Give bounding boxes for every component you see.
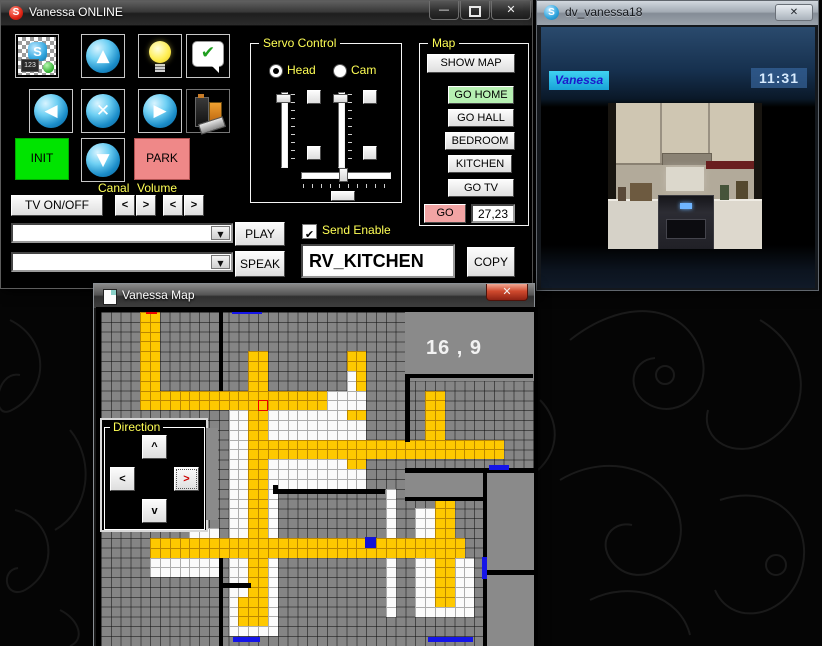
map-cell: [140, 332, 150, 342]
servo-slider-vertical-2[interactable]: [338, 92, 345, 168]
map-cell: [189, 391, 199, 401]
map-cell: [356, 371, 366, 381]
map-cell: [356, 351, 366, 361]
map-cell: [258, 489, 268, 499]
map-cell: [268, 626, 278, 636]
counter-clutter: [720, 185, 729, 200]
map-cell: [347, 548, 357, 558]
map-cell: [258, 626, 268, 636]
map-cell: [229, 626, 239, 636]
map-cell: [356, 381, 366, 391]
map-cell: [140, 351, 150, 361]
map-cell: [445, 538, 455, 548]
map-cell: [150, 400, 160, 410]
direction-left-button[interactable]: <: [110, 467, 135, 491]
direction-down-button[interactable]: v: [142, 499, 167, 523]
map-cell: [307, 440, 317, 450]
map-cell: [435, 567, 445, 577]
map-cell: [396, 449, 406, 459]
servo-slider-thumb[interactable]: [333, 94, 348, 103]
map-cell: [445, 558, 455, 568]
speak-combobox[interactable]: ▼: [11, 252, 233, 272]
map-cell: [415, 567, 425, 577]
map-cell: [356, 548, 366, 558]
map-cell: [347, 381, 357, 391]
go-coords-field[interactable]: 27,23: [471, 204, 515, 223]
nav-left-button[interactable]: ◀: [29, 89, 73, 133]
light-button[interactable]: [138, 34, 182, 78]
map-cell: [445, 607, 455, 617]
map-cell: [199, 391, 209, 401]
map-cell: [150, 391, 160, 401]
map-cell: [229, 440, 239, 450]
map-cell: [248, 351, 258, 361]
map-cell: [150, 322, 160, 332]
combo-arrow-icon[interactable]: ▼: [211, 255, 230, 269]
servo-step-button[interactable]: [307, 146, 321, 160]
servo-slider-thumb[interactable]: [276, 94, 291, 103]
map-cell: [297, 469, 307, 479]
map-cell: [366, 440, 376, 450]
map-cell: [386, 567, 396, 577]
map-cell: [268, 567, 278, 577]
map-cell: [268, 528, 278, 538]
map-cell: [425, 577, 435, 587]
map-cell: [170, 538, 180, 548]
dial-video-button[interactable]: S 123: [15, 34, 59, 78]
servo-slider-vertical-1[interactable]: [281, 92, 288, 168]
cam-radio[interactable]: [333, 64, 347, 78]
map-cell: [386, 538, 396, 548]
map-cell: [327, 538, 337, 548]
map-cell: [238, 518, 248, 528]
map-cell: [317, 449, 327, 459]
map-cell: [317, 538, 327, 548]
map-cell: [248, 361, 258, 371]
map-cell: [278, 469, 288, 479]
map-cell: [356, 469, 366, 479]
map-cell: [356, 400, 366, 410]
map-cell: [386, 508, 396, 518]
map-cell: [229, 449, 239, 459]
map-cell: [268, 469, 278, 479]
map-cell: [337, 400, 347, 410]
map-cell: [150, 558, 160, 568]
map-cell: [337, 420, 347, 430]
map-cell: [337, 548, 347, 558]
map-cell: [229, 597, 239, 607]
map-cell: [248, 499, 258, 509]
map-cell: [238, 607, 248, 617]
checkerboard-icon: S 123: [18, 37, 56, 75]
map-cell: [288, 391, 298, 401]
map-cell: [356, 430, 366, 440]
desktop: S Vanessa ONLINE — ✕ S 123 ▲ ✔: [0, 0, 822, 646]
map-cell: [386, 577, 396, 587]
wallpaper-pattern: [0, 280, 95, 646]
map-cell: [278, 410, 288, 420]
map-cell: [229, 430, 239, 440]
map-cell: [327, 449, 337, 459]
video-top-gradient: [541, 27, 815, 107]
bulb-base-icon: [155, 64, 165, 72]
map-cell: [455, 440, 465, 450]
canal-up-button[interactable]: >: [136, 195, 156, 216]
map-cell: [347, 410, 357, 420]
map-cell: [209, 538, 219, 548]
map-cell: [415, 587, 425, 597]
map-cell: [386, 528, 396, 538]
volume-down-button[interactable]: <: [163, 195, 183, 216]
head-radio[interactable]: [269, 64, 283, 78]
map-cell: [288, 440, 298, 450]
map-cell: [268, 558, 278, 568]
map-cell: [425, 528, 435, 538]
map-cell: [248, 420, 258, 430]
map-cell: [229, 538, 239, 548]
map-cell: [150, 341, 160, 351]
map-cell: [435, 528, 445, 538]
map-cell: [248, 616, 258, 626]
servo-step-button[interactable]: [307, 90, 321, 104]
map-cell: [248, 449, 258, 459]
map-cell: [278, 449, 288, 459]
servo-control-title: Servo Control: [259, 36, 340, 50]
map-cell: [238, 489, 248, 499]
map-marker: [232, 312, 262, 314]
skype-video-window: S dv_vanessa18 ✕: [536, 0, 819, 291]
map-cell: [396, 548, 406, 558]
map-cell: [199, 400, 209, 410]
go-tv-button[interactable]: GO TV: [448, 179, 514, 197]
map-cell: [317, 400, 327, 410]
skype-titlebar[interactable]: S dv_vanessa18 ✕: [537, 1, 818, 25]
map-cell: [160, 548, 170, 558]
map-cell: [356, 479, 366, 489]
map-cell: [180, 391, 190, 401]
video-timestamp: 11:31: [751, 68, 807, 88]
map-cell: [445, 567, 455, 577]
map-cell: [307, 400, 317, 410]
map-close-button[interactable]: ✕: [486, 284, 528, 301]
direction-up-button[interactable]: ^: [142, 435, 167, 459]
map-cell: [219, 391, 229, 401]
map-cell: [238, 440, 248, 450]
map-cell: [209, 391, 219, 401]
map-cell: [268, 538, 278, 548]
map-cell: [297, 449, 307, 459]
main-window-title: Vanessa ONLINE: [29, 5, 123, 19]
map-cell: [435, 400, 445, 410]
map-cell: [297, 548, 307, 558]
send-enable-label: Send Enable: [322, 223, 391, 237]
map-cell: [268, 459, 278, 469]
map-cell: [150, 538, 160, 548]
nav-down-button[interactable]: ▼: [81, 138, 125, 182]
map-coordinates: 16 , 9: [412, 324, 536, 372]
map-cell: [347, 391, 357, 401]
close-button[interactable]: ✕: [491, 1, 531, 20]
red-shelf: [706, 161, 754, 169]
go-button[interactable]: GO: [424, 204, 466, 223]
map-cell: [248, 381, 258, 391]
map-cell: [425, 391, 435, 401]
maximize-icon: [469, 6, 481, 17]
map-cell: [396, 538, 406, 548]
map-cell: [140, 371, 150, 381]
map-cell: [297, 391, 307, 401]
map-cell: [356, 459, 366, 469]
map-cell: [415, 558, 425, 568]
battery-button[interactable]: [186, 89, 230, 133]
map-cell: [258, 459, 268, 469]
servo-slider-thumb[interactable]: [339, 168, 348, 182]
map-cell: [288, 459, 298, 469]
map-cell: [425, 548, 435, 558]
map-cell: [238, 430, 248, 440]
map-cell: [150, 332, 160, 342]
counter-left: [608, 199, 658, 249]
map-cell: [455, 558, 465, 568]
map-cell: [140, 361, 150, 371]
map-wall: [219, 558, 224, 646]
map-cell: [435, 420, 445, 430]
map-cell: [258, 469, 268, 479]
oven-window: [666, 219, 706, 239]
map-cell: [258, 597, 268, 607]
map-cell: [455, 548, 465, 558]
map-cell: [268, 391, 278, 401]
webcam-frame: [608, 103, 762, 249]
park-button[interactable]: PARK: [134, 138, 190, 180]
counter-clutter: [630, 183, 652, 201]
canal-down-button[interactable]: <: [115, 195, 135, 216]
map-cell: [229, 459, 239, 469]
servo-step-button[interactable]: [363, 90, 377, 104]
map-cell: [455, 587, 465, 597]
map-cell: [445, 449, 455, 459]
servo-step-button[interactable]: [331, 191, 355, 201]
volume-up-button[interactable]: >: [184, 195, 204, 216]
map-cell: [464, 577, 474, 587]
servo-step-button[interactable]: [363, 146, 377, 160]
map-cell: [455, 567, 465, 577]
map-cell: [229, 400, 239, 410]
map-cell: [474, 449, 484, 459]
map-cell: [209, 567, 219, 577]
send-enable-checkbox[interactable]: ✔: [302, 224, 317, 239]
map-cell: [376, 449, 386, 459]
map-cell: [229, 489, 239, 499]
map-cell: [415, 577, 425, 587]
play-combobox[interactable]: ▼: [11, 223, 233, 243]
map-cell: [238, 626, 248, 636]
map-wall: [483, 570, 535, 575]
map-cell: [238, 400, 248, 410]
map-cell: [297, 400, 307, 410]
map-cell: [297, 440, 307, 450]
map-cell: [464, 587, 474, 597]
map-cell: [278, 391, 288, 401]
map-cell: [307, 538, 317, 548]
map-cell: [494, 440, 504, 450]
map-cell: [229, 391, 239, 401]
map-cell: [396, 440, 406, 450]
map-cell: [445, 508, 455, 518]
map-cell: [268, 587, 278, 597]
map-wall: [219, 583, 251, 588]
map-cell: [150, 548, 160, 558]
map-cell: [248, 440, 258, 450]
map-cell: [386, 587, 396, 597]
map-cell: [386, 518, 396, 528]
go-hall-button[interactable]: GO HALL: [448, 109, 514, 127]
map-cell: [307, 479, 317, 489]
map-cell: [455, 577, 465, 587]
map-cell: [268, 430, 278, 440]
map-cell: [140, 322, 150, 332]
map-marker: [489, 465, 510, 470]
copy-button[interactable]: COPY: [467, 247, 515, 277]
map-cell: [327, 400, 337, 410]
map-cell: [189, 400, 199, 410]
tv-onoff-button[interactable]: TV ON/OFF: [11, 195, 103, 216]
combo-arrow-icon[interactable]: ▼: [211, 226, 230, 240]
message-field[interactable]: RV_KITCHEN: [301, 244, 455, 278]
map-cell: [199, 548, 209, 558]
map-cell: [307, 430, 317, 440]
map-cell: [258, 616, 268, 626]
map-cell: [288, 400, 298, 410]
map-cell: [376, 548, 386, 558]
map-cell: [229, 587, 239, 597]
volume-label: Volume: [137, 181, 177, 195]
battery-cap-icon: [198, 94, 204, 98]
go-home-button[interactable]: GO HOME: [448, 86, 514, 104]
map-cell: [347, 479, 357, 489]
confirm-speech-button[interactable]: ✔: [186, 34, 230, 78]
map-cell: [248, 607, 258, 617]
map-wall: [405, 374, 533, 379]
map-cell: [180, 400, 190, 410]
map-cell: [337, 391, 347, 401]
map-cell: [435, 558, 445, 568]
maximize-button[interactable]: [460, 1, 490, 20]
map-cell: [356, 440, 366, 450]
map-cell: [229, 558, 239, 568]
nav-right-button[interactable]: ▶: [138, 89, 182, 133]
map-cell: [415, 449, 425, 459]
map-cell: [317, 410, 327, 420]
map-marker: [365, 537, 376, 548]
map-cell: [435, 391, 445, 401]
phone-icon: [43, 62, 54, 73]
map-cell: [209, 558, 219, 568]
right-arrow-icon: ▶: [143, 94, 177, 128]
app-icon: S: [9, 6, 23, 20]
map-cell: [435, 440, 445, 450]
map-cell: [327, 469, 337, 479]
map-cell: [248, 587, 258, 597]
map-cell: [248, 479, 258, 489]
map-cell: [268, 449, 278, 459]
bedroom-button[interactable]: BEDROOM: [445, 132, 515, 150]
map-cell: [248, 567, 258, 577]
map-cell: [337, 449, 347, 459]
direction-window-shadow: [206, 428, 218, 520]
map-cell: [445, 518, 455, 528]
map-cell: [455, 597, 465, 607]
map-cell: [258, 607, 268, 617]
map-cell: [455, 538, 465, 548]
map-cell: [229, 410, 239, 420]
map-cell: [248, 597, 258, 607]
radio-dot: [273, 68, 279, 74]
map-cell: [347, 538, 357, 548]
video-bottom-gradient: [541, 245, 815, 288]
slider-ticks: [303, 184, 389, 188]
map-cell: [425, 400, 435, 410]
map-cell: [484, 449, 494, 459]
map-titlebar[interactable]: Vanessa Map ✕: [94, 284, 534, 308]
map-wall: [405, 497, 485, 502]
speak-button[interactable]: SPEAK: [235, 251, 285, 277]
map-cell: [386, 548, 396, 558]
map-cell: [150, 351, 160, 361]
map-cell: [268, 607, 278, 617]
map-cell: [386, 558, 396, 568]
map-cell: [278, 459, 288, 469]
nav-up-button[interactable]: ▲: [81, 34, 125, 78]
map-cell: [425, 410, 435, 420]
map-cell: [229, 528, 239, 538]
minimize-button[interactable]: —: [429, 1, 459, 20]
caller-name-badge: Vanessa: [549, 71, 609, 90]
stop-button[interactable]: ✕: [81, 89, 125, 133]
map-cell: [209, 548, 219, 558]
map-cell: [180, 538, 190, 548]
map-cell: [258, 440, 268, 450]
map-cell: [170, 567, 180, 577]
map-window-icon: [103, 289, 117, 305]
play-button[interactable]: PLAY: [235, 222, 285, 246]
init-button[interactable]: INIT: [15, 138, 69, 180]
map-cell: [386, 597, 396, 607]
kitchen-button[interactable]: KITCHEN: [448, 155, 512, 173]
map-cell: [307, 469, 317, 479]
map-cell: [278, 479, 288, 489]
main-titlebar[interactable]: S Vanessa ONLINE — ✕: [1, 1, 532, 26]
map-cell: [258, 361, 268, 371]
direction-right-button[interactable]: >: [174, 467, 199, 491]
map-cell: [445, 528, 455, 538]
map-cell: [268, 420, 278, 430]
map-cell: [229, 567, 239, 577]
map-cell: [258, 351, 268, 361]
map-cell: [189, 538, 199, 548]
skype-close-button[interactable]: ✕: [775, 4, 813, 21]
map-wall: [273, 489, 385, 494]
map-cell: [337, 479, 347, 489]
check-icon: ✔: [201, 43, 215, 63]
map-cell: [307, 420, 317, 430]
map-cell: [425, 538, 435, 548]
robot-position-cursor: [258, 400, 269, 411]
show-map-button[interactable]: SHOW MAP: [427, 54, 515, 73]
map-cell: [189, 567, 199, 577]
map-cell: [199, 558, 209, 568]
map-cell: [297, 420, 307, 430]
